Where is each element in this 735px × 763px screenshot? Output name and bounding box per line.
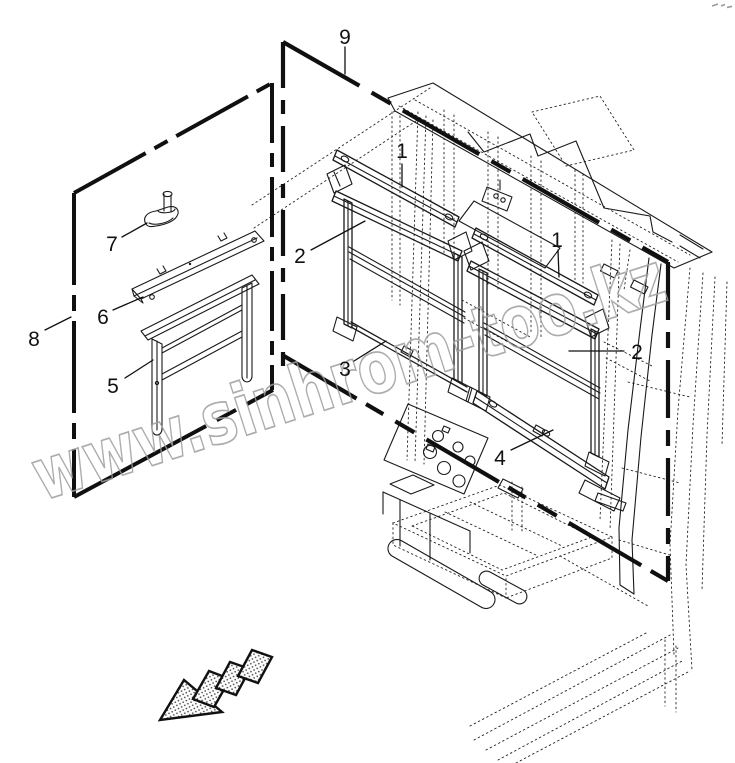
direction-arrow-icon: [160, 650, 272, 720]
callout-7: 7: [106, 233, 118, 256]
detail-winder-knob: [145, 191, 179, 226]
callout-1-left: 1: [396, 140, 408, 163]
callout-3: 3: [339, 358, 351, 381]
callout-8: 8: [28, 328, 40, 351]
callout-1-right: 1: [551, 229, 563, 252]
right-curtain-lower-rail: [473, 391, 609, 489]
detail-bracket-plate: [132, 231, 264, 303]
callout-5: 5: [107, 375, 119, 398]
callout-2-left: 2: [294, 245, 306, 268]
callout-9: 9: [339, 26, 351, 49]
callout-2-right: 2: [631, 341, 643, 364]
callout-6: 6: [97, 306, 109, 329]
diagram-page: www.sinhrom-too.kz 1 1 2 2 3 4 5 6 7 8 9: [0, 0, 735, 763]
callout-4: 4: [494, 447, 506, 470]
corner-print-mark: [712, 4, 732, 8]
diagram-canvas: www.sinhrom-too.kz 1 1 2 2 3 4 5 6 7 8 9: [0, 0, 735, 763]
